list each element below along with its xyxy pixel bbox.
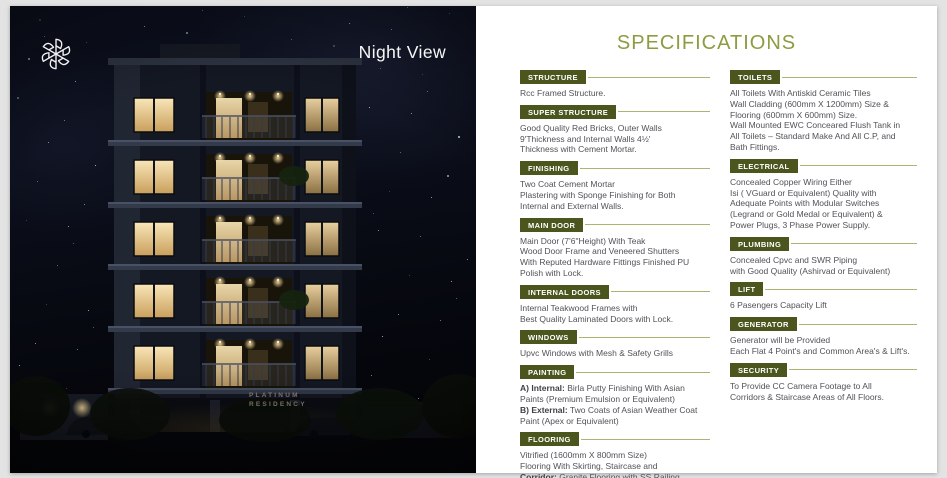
spec-section: PAINTINGA) Internal: Birla Putty Finishi…	[520, 365, 710, 426]
spec-body: 6 Pasengers Capacity Lift	[730, 300, 917, 311]
spec-badge: SECURITY	[730, 363, 787, 377]
spec-section: SUPER STRUCTUREGood Quality Red Bricks, …	[520, 105, 710, 155]
spec-badge: SUPER STRUCTURE	[520, 105, 616, 119]
spec-rule-line	[782, 77, 917, 78]
spec-badge: GENERATOR	[730, 317, 797, 331]
spec-rule-line	[618, 111, 710, 112]
spec-section-header: WINDOWS	[520, 330, 710, 344]
building-illustration	[10, 6, 476, 473]
spec-section: LIFT6 Pasengers Capacity Lift	[730, 282, 917, 311]
spec-body: Good Quality Red Bricks, Outer Walls9'Th…	[520, 123, 710, 155]
spec-body: Vitrified (1600mm X 800mm Size)Flooring …	[520, 450, 710, 478]
spec-rule-line	[585, 224, 710, 225]
spec-section-header: GENERATOR	[730, 317, 917, 331]
spec-rule-line	[580, 168, 710, 169]
spec-badge: FLOORING	[520, 432, 579, 446]
spec-body: A) Internal: Birla Putty Finishing With …	[520, 383, 710, 426]
spec-badge: WINDOWS	[520, 330, 577, 344]
page-title: SPECIFICATIONS	[476, 32, 937, 55]
spec-body: To Provide CC Camera Footage to AllCorri…	[730, 381, 917, 403]
spec-section-header: FINISHING	[520, 161, 710, 175]
spec-body: Concealed Copper Wiring EitherIsi ( VGua…	[730, 177, 917, 231]
spec-section-header: FLOORING	[520, 432, 710, 446]
spec-badge: MAIN DOOR	[520, 218, 583, 232]
spec-badge: TOILETS	[730, 70, 780, 84]
spec-section-header: SECURITY	[730, 363, 917, 377]
spec-rule-line	[611, 291, 710, 292]
spec-badge: ELECTRICAL	[730, 159, 798, 173]
brochure-page: PLATINUM RESIDENCY Night View SPECIFICAT…	[10, 6, 937, 473]
spec-badge: STRUCTURE	[520, 70, 586, 84]
spec-rule-line	[588, 77, 710, 78]
spec-section: MAIN DOORMain Door (7'6"Height) With Tea…	[520, 218, 710, 279]
spec-section: STRUCTURERcc Framed Structure.	[520, 70, 710, 99]
spec-section-header: PLUMBING	[730, 237, 917, 251]
spec-section: FINISHINGTwo Coat Cement MortarPlasterin…	[520, 161, 710, 211]
spec-rule-line	[576, 372, 710, 373]
spec-body: Concealed Cpvc and SWR Pipingwith Good Q…	[730, 255, 917, 277]
spec-rule-line	[799, 324, 917, 325]
building-sign-line1: PLATINUM	[249, 391, 307, 400]
spec-body: Generator will be ProvidedEach Flat 4 Po…	[730, 335, 917, 357]
spec-body: Internal Teakwood Frames withBest Qualit…	[520, 303, 710, 325]
spec-badge: INTERNAL DOORS	[520, 285, 609, 299]
spec-section-header: MAIN DOOR	[520, 218, 710, 232]
spec-body: All Toilets With Antiskid Ceramic TilesW…	[730, 88, 917, 153]
spec-column-right: TOILETSAll Toilets With Antiskid Ceramic…	[730, 70, 917, 478]
spec-section-header: STRUCTURE	[520, 70, 710, 84]
spec-section: INTERNAL DOORSInternal Teakwood Frames w…	[520, 285, 710, 325]
spec-body: Two Coat Cement MortarPlastering with Sp…	[520, 179, 710, 211]
spec-badge: PAINTING	[520, 365, 574, 379]
spec-section: WINDOWSUpvc Windows with Mesh & Safety G…	[520, 330, 710, 359]
spec-section-header: INTERNAL DOORS	[520, 285, 710, 299]
spec-section: FLOORINGVitrified (1600mm X 800mm Size)F…	[520, 432, 710, 478]
spec-badge: PLUMBING	[730, 237, 789, 251]
spec-rule-line	[789, 369, 917, 370]
building-sign-line2: RESIDENCY	[249, 400, 307, 409]
rosette-monogram-logo-icon	[34, 32, 78, 76]
building-sign: PLATINUM RESIDENCY	[249, 391, 307, 409]
spec-section-header: SUPER STRUCTURE	[520, 105, 710, 119]
night-photo-panel: PLATINUM RESIDENCY Night View	[10, 6, 476, 473]
spec-section: GENERATORGenerator will be ProvidedEach …	[730, 317, 917, 357]
spec-body: Rcc Framed Structure.	[520, 88, 710, 99]
spec-rule-line	[579, 337, 710, 338]
spec-rule-line	[800, 165, 918, 166]
spec-section-header: PAINTING	[520, 365, 710, 379]
spec-body: Main Door (7'6"Height) With TeakWood Doo…	[520, 236, 710, 279]
spec-body: Upvc Windows with Mesh & Safety Grills	[520, 348, 710, 359]
spec-section-header: LIFT	[730, 282, 917, 296]
spec-column-left: STRUCTURERcc Framed Structure.SUPER STRU…	[520, 70, 710, 478]
specifications-panel: SPECIFICATIONS STRUCTURERcc Framed Struc…	[476, 6, 937, 473]
spec-badge: LIFT	[730, 282, 763, 296]
spec-rule-line	[765, 289, 917, 290]
spec-section: SECURITYTo Provide CC Camera Footage to …	[730, 363, 917, 403]
spec-section-header: TOILETS	[730, 70, 917, 84]
spec-rule-line	[791, 243, 917, 244]
spec-rule-line	[581, 439, 710, 440]
spec-columns: STRUCTURERcc Framed Structure.SUPER STRU…	[476, 70, 937, 478]
spec-section: TOILETSAll Toilets With Antiskid Ceramic…	[730, 70, 917, 153]
spec-section-header: ELECTRICAL	[730, 159, 917, 173]
spec-badge: FINISHING	[520, 161, 578, 175]
spec-section: ELECTRICALConcealed Copper Wiring Either…	[730, 159, 917, 231]
spec-section: PLUMBINGConcealed Cpvc and SWR Pipingwit…	[730, 237, 917, 277]
photo-caption: Night View	[359, 42, 446, 63]
